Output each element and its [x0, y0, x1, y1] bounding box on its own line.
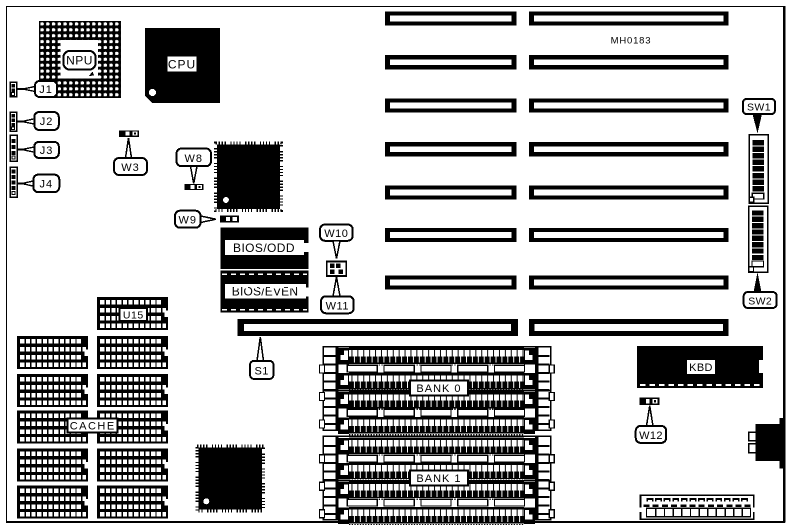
svg-text:SW1: SW1	[747, 102, 771, 114]
svg-text:U15: U15	[123, 309, 144, 321]
svg-text:W9: W9	[178, 215, 197, 227]
svg-text:SW2: SW2	[748, 295, 772, 307]
svg-text:W11: W11	[326, 300, 349, 312]
svg-text:BANK 0: BANK 0	[416, 383, 461, 395]
svg-text:CPU: CPU	[168, 58, 196, 72]
svg-text:CACHE: CACHE	[70, 421, 116, 433]
svg-text:W12: W12	[639, 430, 663, 442]
svg-text:BIOS/ODD: BIOS/ODD	[233, 241, 295, 255]
svg-text:J1: J1	[39, 84, 53, 96]
svg-text:W3: W3	[121, 162, 140, 174]
svg-text:MH0183: MH0183	[611, 36, 652, 47]
svg-text:W8: W8	[184, 153, 203, 165]
svg-text:NPU: NPU	[66, 54, 93, 68]
svg-text:BIOS/EVEN: BIOS/EVEN	[232, 285, 299, 299]
svg-text:J4: J4	[39, 179, 53, 191]
svg-text:J3: J3	[40, 145, 54, 157]
svg-text:J2: J2	[40, 116, 54, 128]
svg-text:BANK 1: BANK 1	[416, 473, 461, 485]
svg-text:S1: S1	[254, 366, 268, 378]
svg-text:W10: W10	[324, 228, 348, 240]
svg-text:KBD: KBD	[689, 362, 713, 374]
